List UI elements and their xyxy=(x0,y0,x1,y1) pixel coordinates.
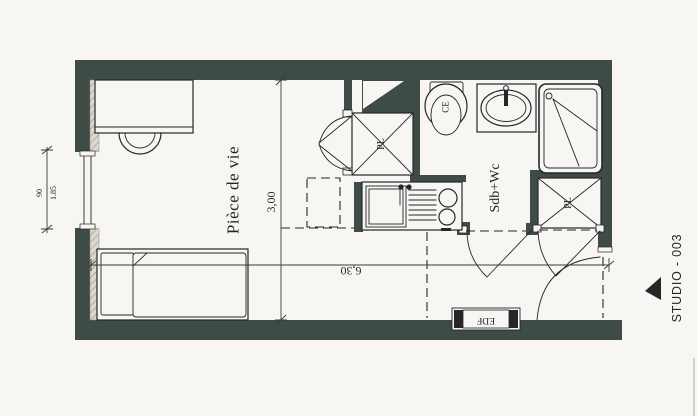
closet-1-label: PL xyxy=(377,138,387,150)
washbasin xyxy=(477,84,536,132)
floor-plan-drawing xyxy=(0,0,697,416)
closet-pl-2 xyxy=(533,178,604,276)
north-marker-triangle xyxy=(645,277,661,300)
dim-label-1-85: 1.85 xyxy=(50,186,58,200)
closet-2-door-swing xyxy=(538,231,600,276)
mattress xyxy=(133,253,246,317)
plan-title: STUDIO - 003 xyxy=(671,234,684,323)
water-heater-label: CE xyxy=(442,101,451,113)
bed xyxy=(97,249,248,320)
room-label-living: Pièce de vie xyxy=(225,146,242,234)
floor-plan-page: Pièce de vie 3,00 Sdb+Wc CE PL PL 6,30 E… xyxy=(0,0,697,416)
window xyxy=(75,151,99,229)
desk xyxy=(95,80,193,133)
closet-1-door-swing xyxy=(319,116,352,171)
dim-label-3-00: 3,00 xyxy=(265,192,277,213)
closet-2-label: PL xyxy=(564,197,574,209)
entrance-door xyxy=(537,257,600,320)
kitchenette xyxy=(362,182,462,231)
appliance-reservation xyxy=(307,178,340,227)
shower xyxy=(539,84,602,173)
chair xyxy=(119,133,161,154)
faucet xyxy=(398,184,403,189)
dim-label-90: 90 xyxy=(36,189,44,197)
room-label-bathroom: Sdb+Wc xyxy=(489,163,503,212)
closet-pl-1 xyxy=(319,110,413,175)
entrance-jamb xyxy=(598,247,612,252)
dim-label-6-30: 6,30 xyxy=(341,265,362,277)
edf-label: EDF xyxy=(477,314,495,324)
